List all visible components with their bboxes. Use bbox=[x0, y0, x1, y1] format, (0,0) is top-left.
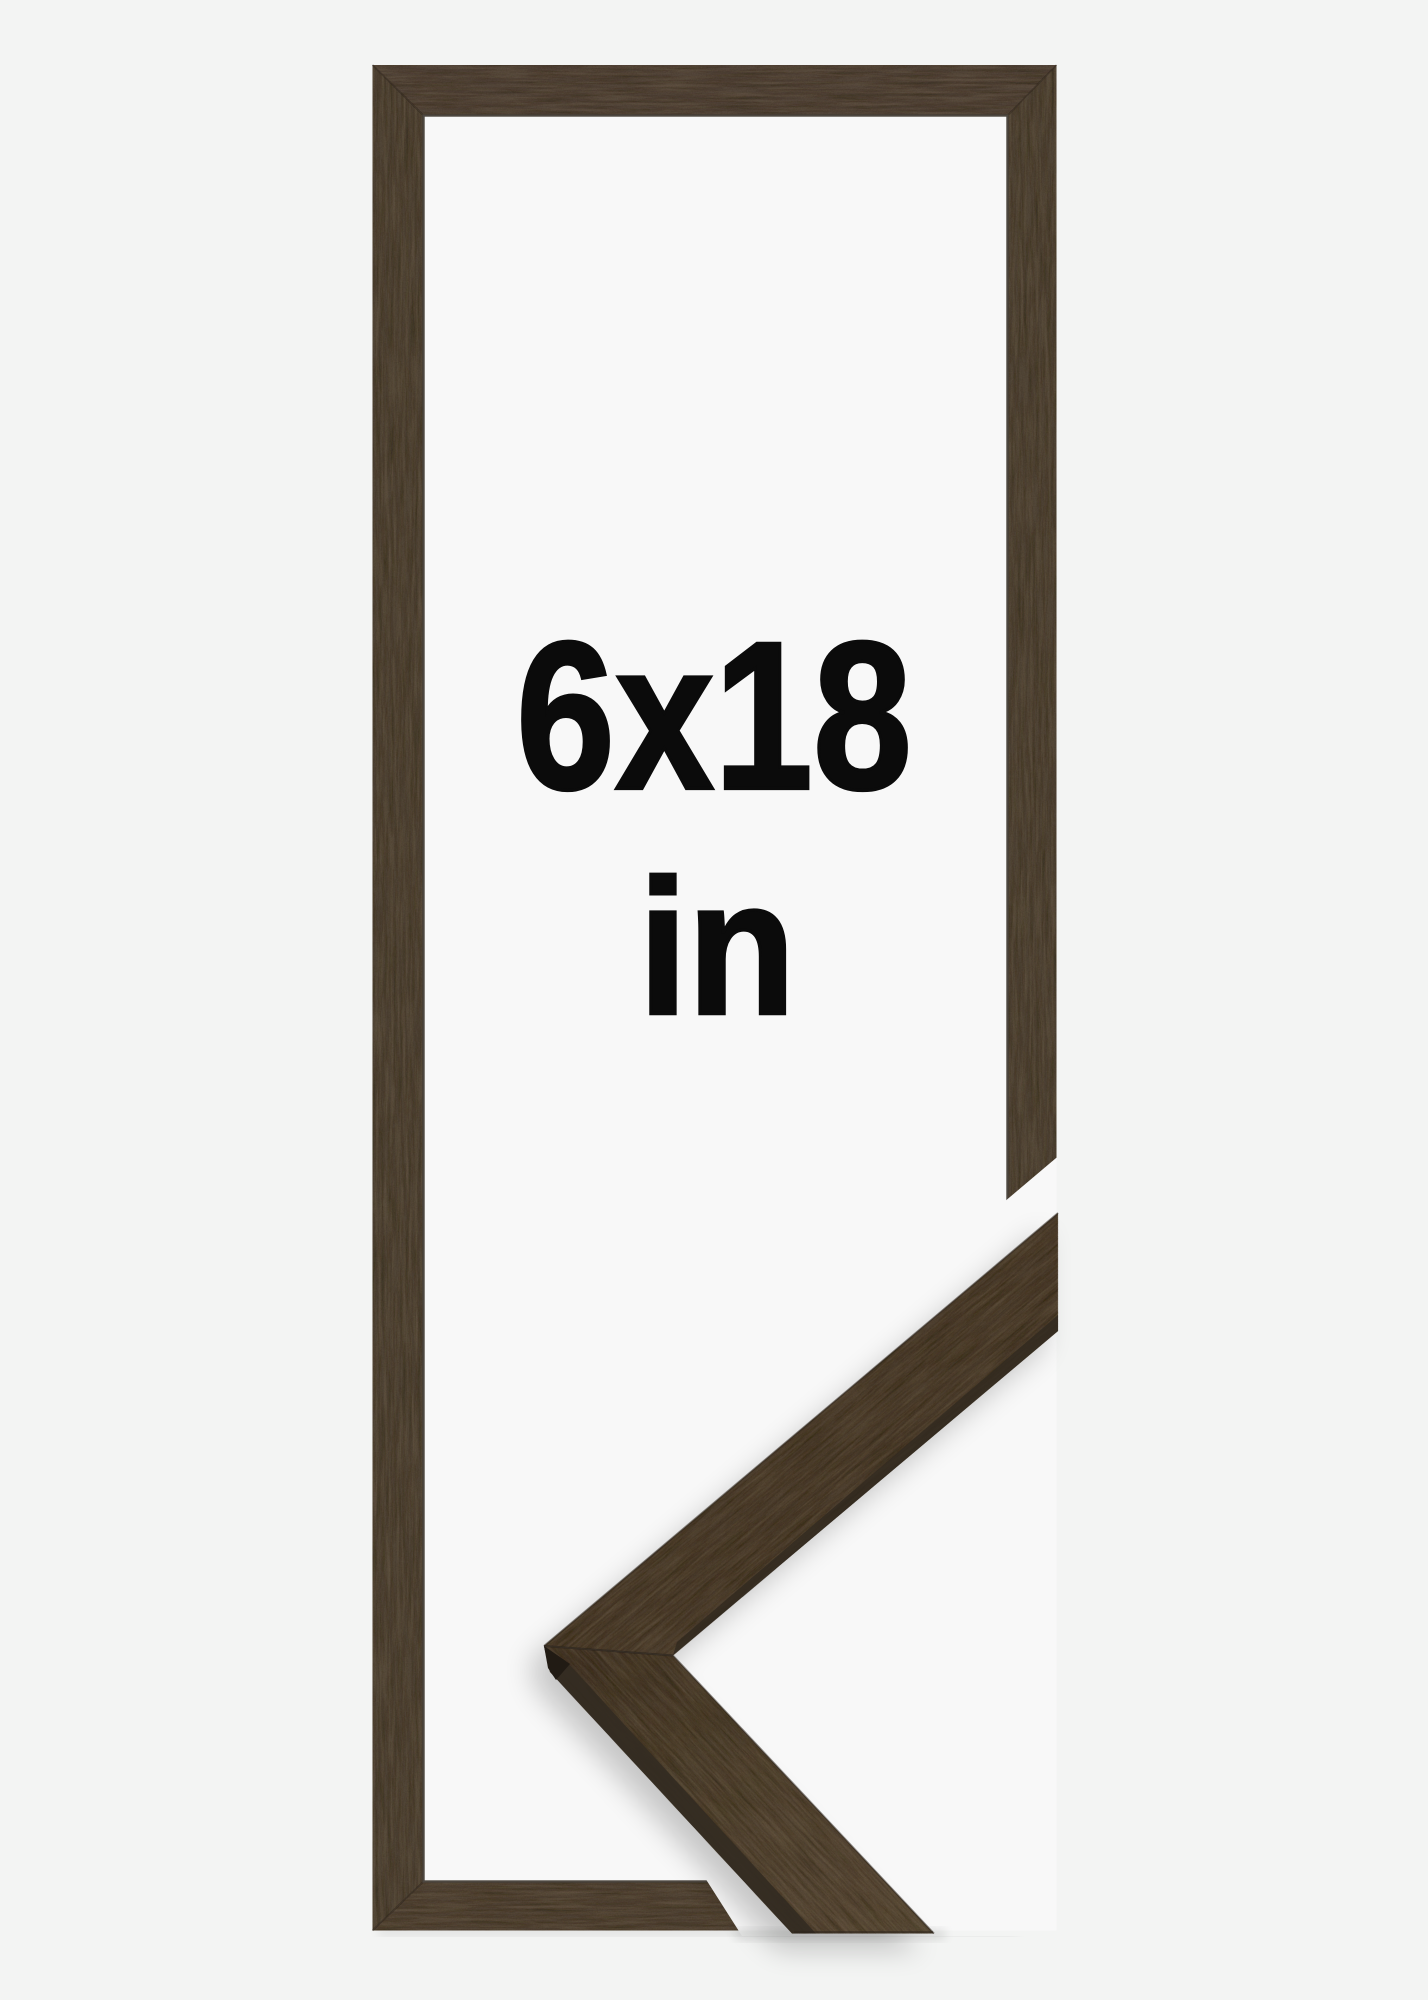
svg-text:in: in bbox=[639, 840, 796, 1055]
svg-text:6x18: 6x18 bbox=[516, 598, 912, 834]
